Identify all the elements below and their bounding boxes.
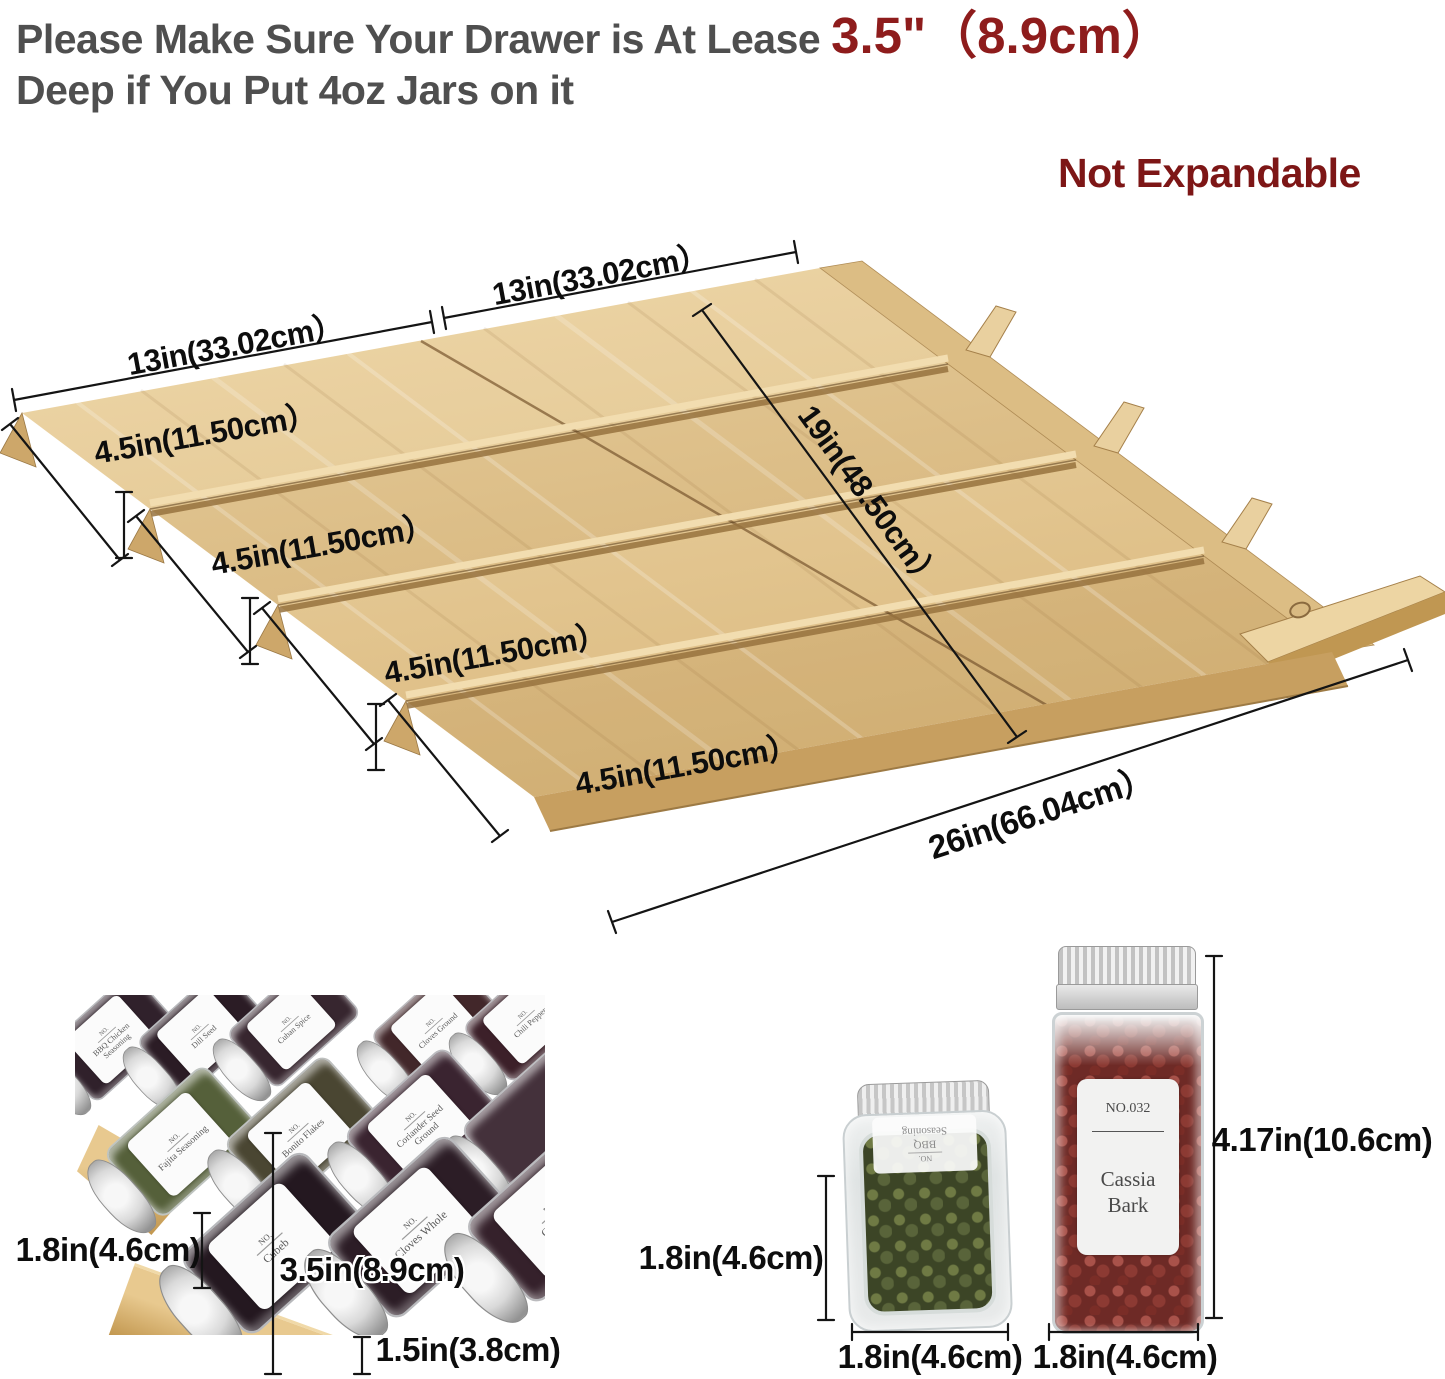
- dim-label-stand-jar-width: 1.8in(4.6cm): [1033, 1338, 1218, 1376]
- brand-logo-icon: [1288, 600, 1311, 619]
- dim-label-base-height: 1.5in(3.8cm): [376, 1331, 561, 1369]
- title-red-text: 3.5"（8.9cm）: [831, 7, 1173, 64]
- dim-label-tier3-depth: 4.5in(11.50cm）: [380, 609, 610, 692]
- jar-glass-body: NO.032 Cassia Bark: [1052, 1012, 1204, 1334]
- dim-label-laid-jar-height: 1.8in(4.6cm): [639, 1239, 824, 1277]
- dim-label-tier1-depth: 4.5in(11.50cm）: [90, 389, 320, 472]
- dim-label-stand-jar-height: 4.17in(10.6cm): [1212, 1121, 1432, 1159]
- dim-label-tier4-depth: 4.5in(11.50cm）: [571, 720, 801, 803]
- dim-label-top-left-13in: 13in(33.02cm）: [123, 300, 347, 384]
- jar-glass-bottom: NO. BBQ Seasoning: [842, 1109, 1014, 1333]
- title-gray-text: Please Make Sure Your Drawer is At Lease: [16, 16, 831, 62]
- page-title: Please Make Sure Your Drawer is At Lease…: [16, 6, 1436, 115]
- dim-label-top-right-13in: 13in(33.02cm）: [488, 230, 712, 314]
- dim-label-tier2-depth: 4.5in(11.50cm）: [207, 500, 437, 583]
- standing-spice-jar: NO.032 Cassia Bark: [1052, 946, 1200, 1330]
- jar-label: NO.032 Cassia Bark: [1077, 1079, 1179, 1255]
- laid-spice-jar: NO. BBQ Seasoning: [841, 1079, 1013, 1331]
- dim-label-jar-length: 3.5in(8.9cm): [280, 1251, 465, 1289]
- title-line2: Deep if You Put 4oz Jars on it: [16, 66, 1436, 114]
- dim-label-lip-height: 1.8in(4.6cm): [16, 1231, 201, 1269]
- dim-label-front-26in: 26in(66.04cm）: [921, 751, 1158, 869]
- jar-label: NO. BBQ Seasoning: [872, 1114, 978, 1174]
- jar-cap-band: [1056, 984, 1198, 1010]
- not-expandable-note: Not Expandable: [1058, 150, 1361, 197]
- product-infographic: NO. BBQ Chicken Seasoning NO. Dill Seed …: [0, 0, 1445, 1379]
- dim-label-depth-19in: 19in(48.50cm）: [789, 394, 954, 598]
- dim-label-laid-jar-width: 1.8in(4.6cm): [838, 1338, 1023, 1376]
- jar-cap-icon: [1058, 946, 1196, 988]
